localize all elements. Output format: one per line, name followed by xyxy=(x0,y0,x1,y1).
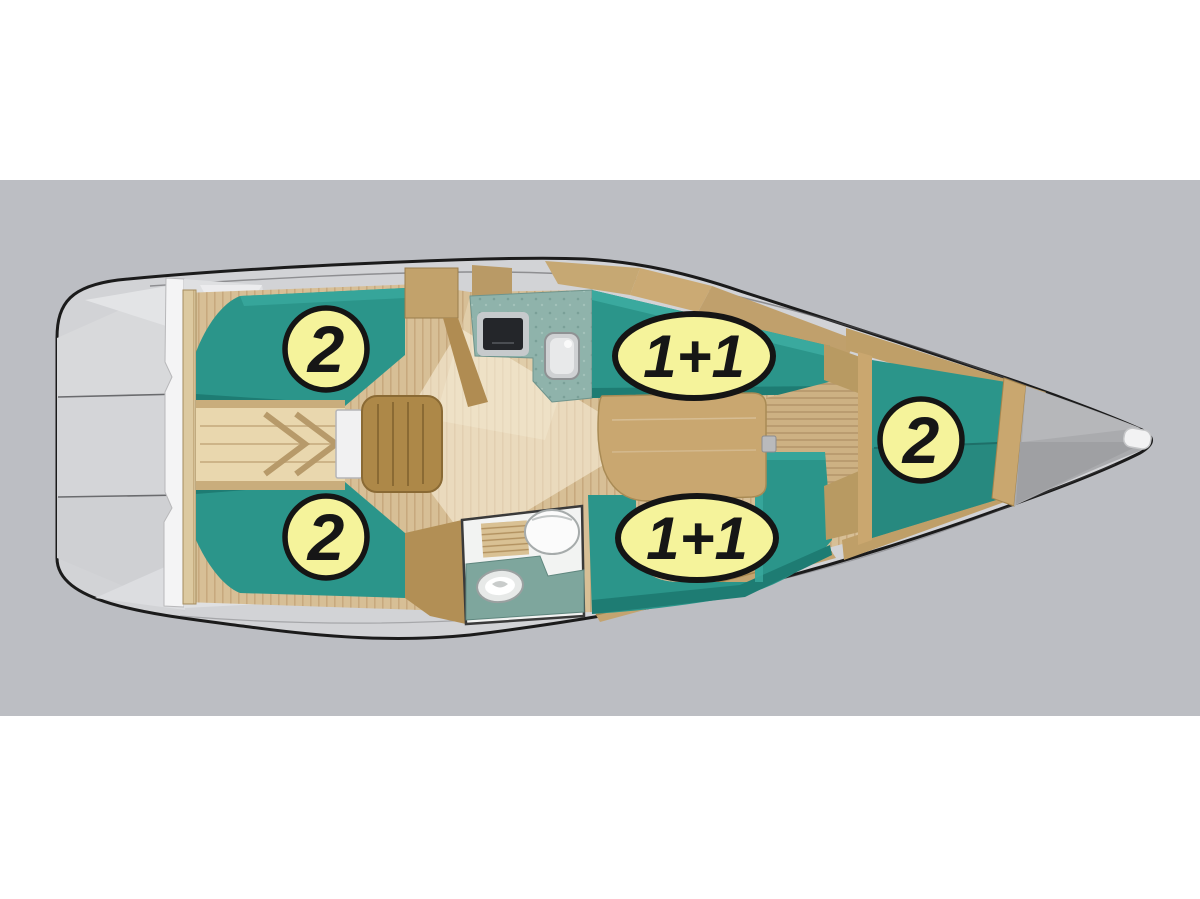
head-teak-grate xyxy=(481,520,529,557)
bow-deck xyxy=(1014,386,1152,506)
berth-marker-saloon-starboard: 1+1 xyxy=(615,314,773,398)
aft-bulkhead-strip xyxy=(183,290,196,604)
berth-marker-saloon-starboard-label: 1+1 xyxy=(643,323,745,390)
nav-cabinet-top xyxy=(405,268,458,318)
table-latch xyxy=(762,436,776,452)
aft-cabin-door xyxy=(336,410,362,478)
berth-marker-saloon-port-label: 1+1 xyxy=(646,505,748,572)
vberth-head-wall xyxy=(858,352,872,545)
transom-step-strip xyxy=(164,278,184,607)
stove xyxy=(483,318,523,350)
berth-marker-aft-port-label: 2 xyxy=(306,312,345,386)
companionway-steps xyxy=(362,396,442,492)
berth-marker-v-berth-label: 2 xyxy=(901,403,940,477)
berth-marker-v-berth: 2 xyxy=(880,399,962,481)
berth-marker-aft-starboard: 2 xyxy=(285,496,367,578)
boat-layout-figure: 2 1+1 2 1+1 2 xyxy=(0,0,1200,899)
saloon-table xyxy=(598,393,766,501)
galley-faucet xyxy=(564,340,572,348)
berth-marker-aft-starboard-label: 2 xyxy=(306,500,345,574)
berth-marker-aft-port: 2 xyxy=(285,308,367,390)
berth-marker-saloon-port: 1+1 xyxy=(618,496,776,580)
engine-box xyxy=(196,400,345,490)
head-compartment xyxy=(462,506,584,624)
boat-layout-svg: 2 1+1 2 1+1 2 xyxy=(0,0,1200,899)
